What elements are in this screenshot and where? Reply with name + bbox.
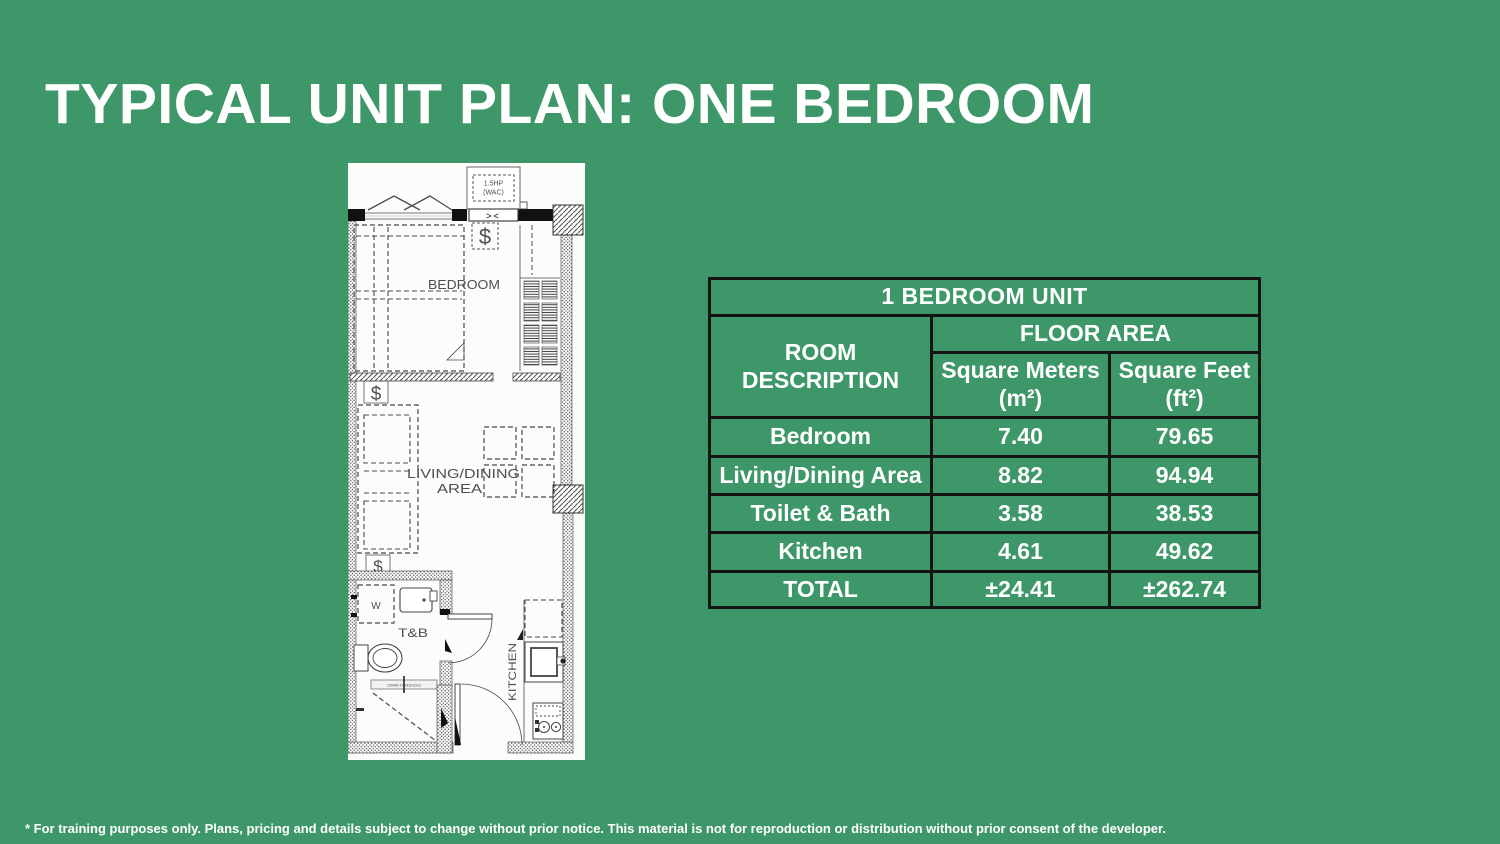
- sqft-cell: 79.65: [1110, 418, 1260, 457]
- area-table: 1 BEDROOM UNIT ROOM DESCRIPTION FLOOR AR…: [708, 277, 1261, 609]
- sqm-cell: 3.58: [932, 495, 1110, 533]
- sqm-header: Square Meters (m²): [932, 353, 1110, 418]
- ac-label-line2: (WAC): [483, 190, 504, 197]
- switch-symbol: $: [479, 224, 491, 249]
- column-block: [553, 485, 583, 513]
- floor-plan: 1.5HP (WAC) >< $ $ $: [348, 163, 585, 760]
- sqm-cell: 8.82: [932, 457, 1110, 495]
- sqft-header: Square Feet (ft²): [1110, 353, 1260, 418]
- table-total-row: TOTAL ±24.41 ±262.74: [710, 572, 1260, 608]
- switch-symbol: $: [371, 384, 382, 405]
- room-description-header: ROOM DESCRIPTION: [710, 316, 932, 418]
- threshold-label: 100MM THRESHOLD: [387, 684, 422, 688]
- column-block: [553, 205, 583, 235]
- sink: [400, 588, 432, 612]
- total-sqm-cell: ±24.41: [932, 572, 1110, 608]
- disclaimer-text: * For training purposes only. Plans, pri…: [25, 821, 1166, 836]
- total-label: TOTAL: [710, 572, 932, 608]
- sqft-cell: 49.62: [1110, 533, 1260, 572]
- room-cell: Living/Dining Area: [710, 457, 932, 495]
- room-cell: Bedroom: [710, 418, 932, 457]
- page-title: TYPICAL UNIT PLAN: ONE BEDROOM: [45, 76, 1094, 133]
- sqft-cell: 94.94: [1110, 457, 1260, 495]
- washer-label: W: [371, 601, 381, 612]
- table-row: Kitchen 4.61 49.62: [710, 533, 1260, 572]
- aircon-unit: 1.5HP (WAC) ><: [467, 167, 520, 221]
- table-row: Toilet & Bath 3.58 38.53: [710, 495, 1260, 533]
- ac-label-line1: 1.5HP: [484, 181, 504, 188]
- floor-plan-svg: 1.5HP (WAC) >< $ $ $: [348, 163, 585, 760]
- table-title: 1 BEDROOM UNIT: [710, 279, 1260, 316]
- table-row: Living/Dining Area 8.82 94.94: [710, 457, 1260, 495]
- kitchen-label: KITCHEN: [507, 643, 519, 701]
- toilet-bath-label: T&B: [398, 626, 428, 640]
- toilet: [354, 645, 368, 671]
- living-dining-label-line1: LIVING/DINING: [407, 466, 520, 481]
- room-cell: Toilet & Bath: [710, 495, 932, 533]
- table-row: Bedroom 7.40 79.65: [710, 418, 1260, 457]
- vent-symbol: ><: [486, 211, 501, 221]
- slide: TYPICAL UNIT PLAN: ONE BEDROOM: [0, 0, 1500, 844]
- room-cell: Kitchen: [710, 533, 932, 572]
- living-dining-label-line2: AREA: [437, 481, 482, 496]
- total-sqft-cell: ±262.74: [1110, 572, 1260, 608]
- sqm-cell: 4.61: [932, 533, 1110, 572]
- floor-area-header: FLOOR AREA: [932, 316, 1260, 353]
- bedroom-label: BEDROOM: [428, 277, 500, 292]
- sqm-cell: 7.40: [932, 418, 1110, 457]
- tb-door: [448, 614, 492, 619]
- ledge-divider: [350, 373, 560, 381]
- sqft-cell: 38.53: [1110, 495, 1260, 533]
